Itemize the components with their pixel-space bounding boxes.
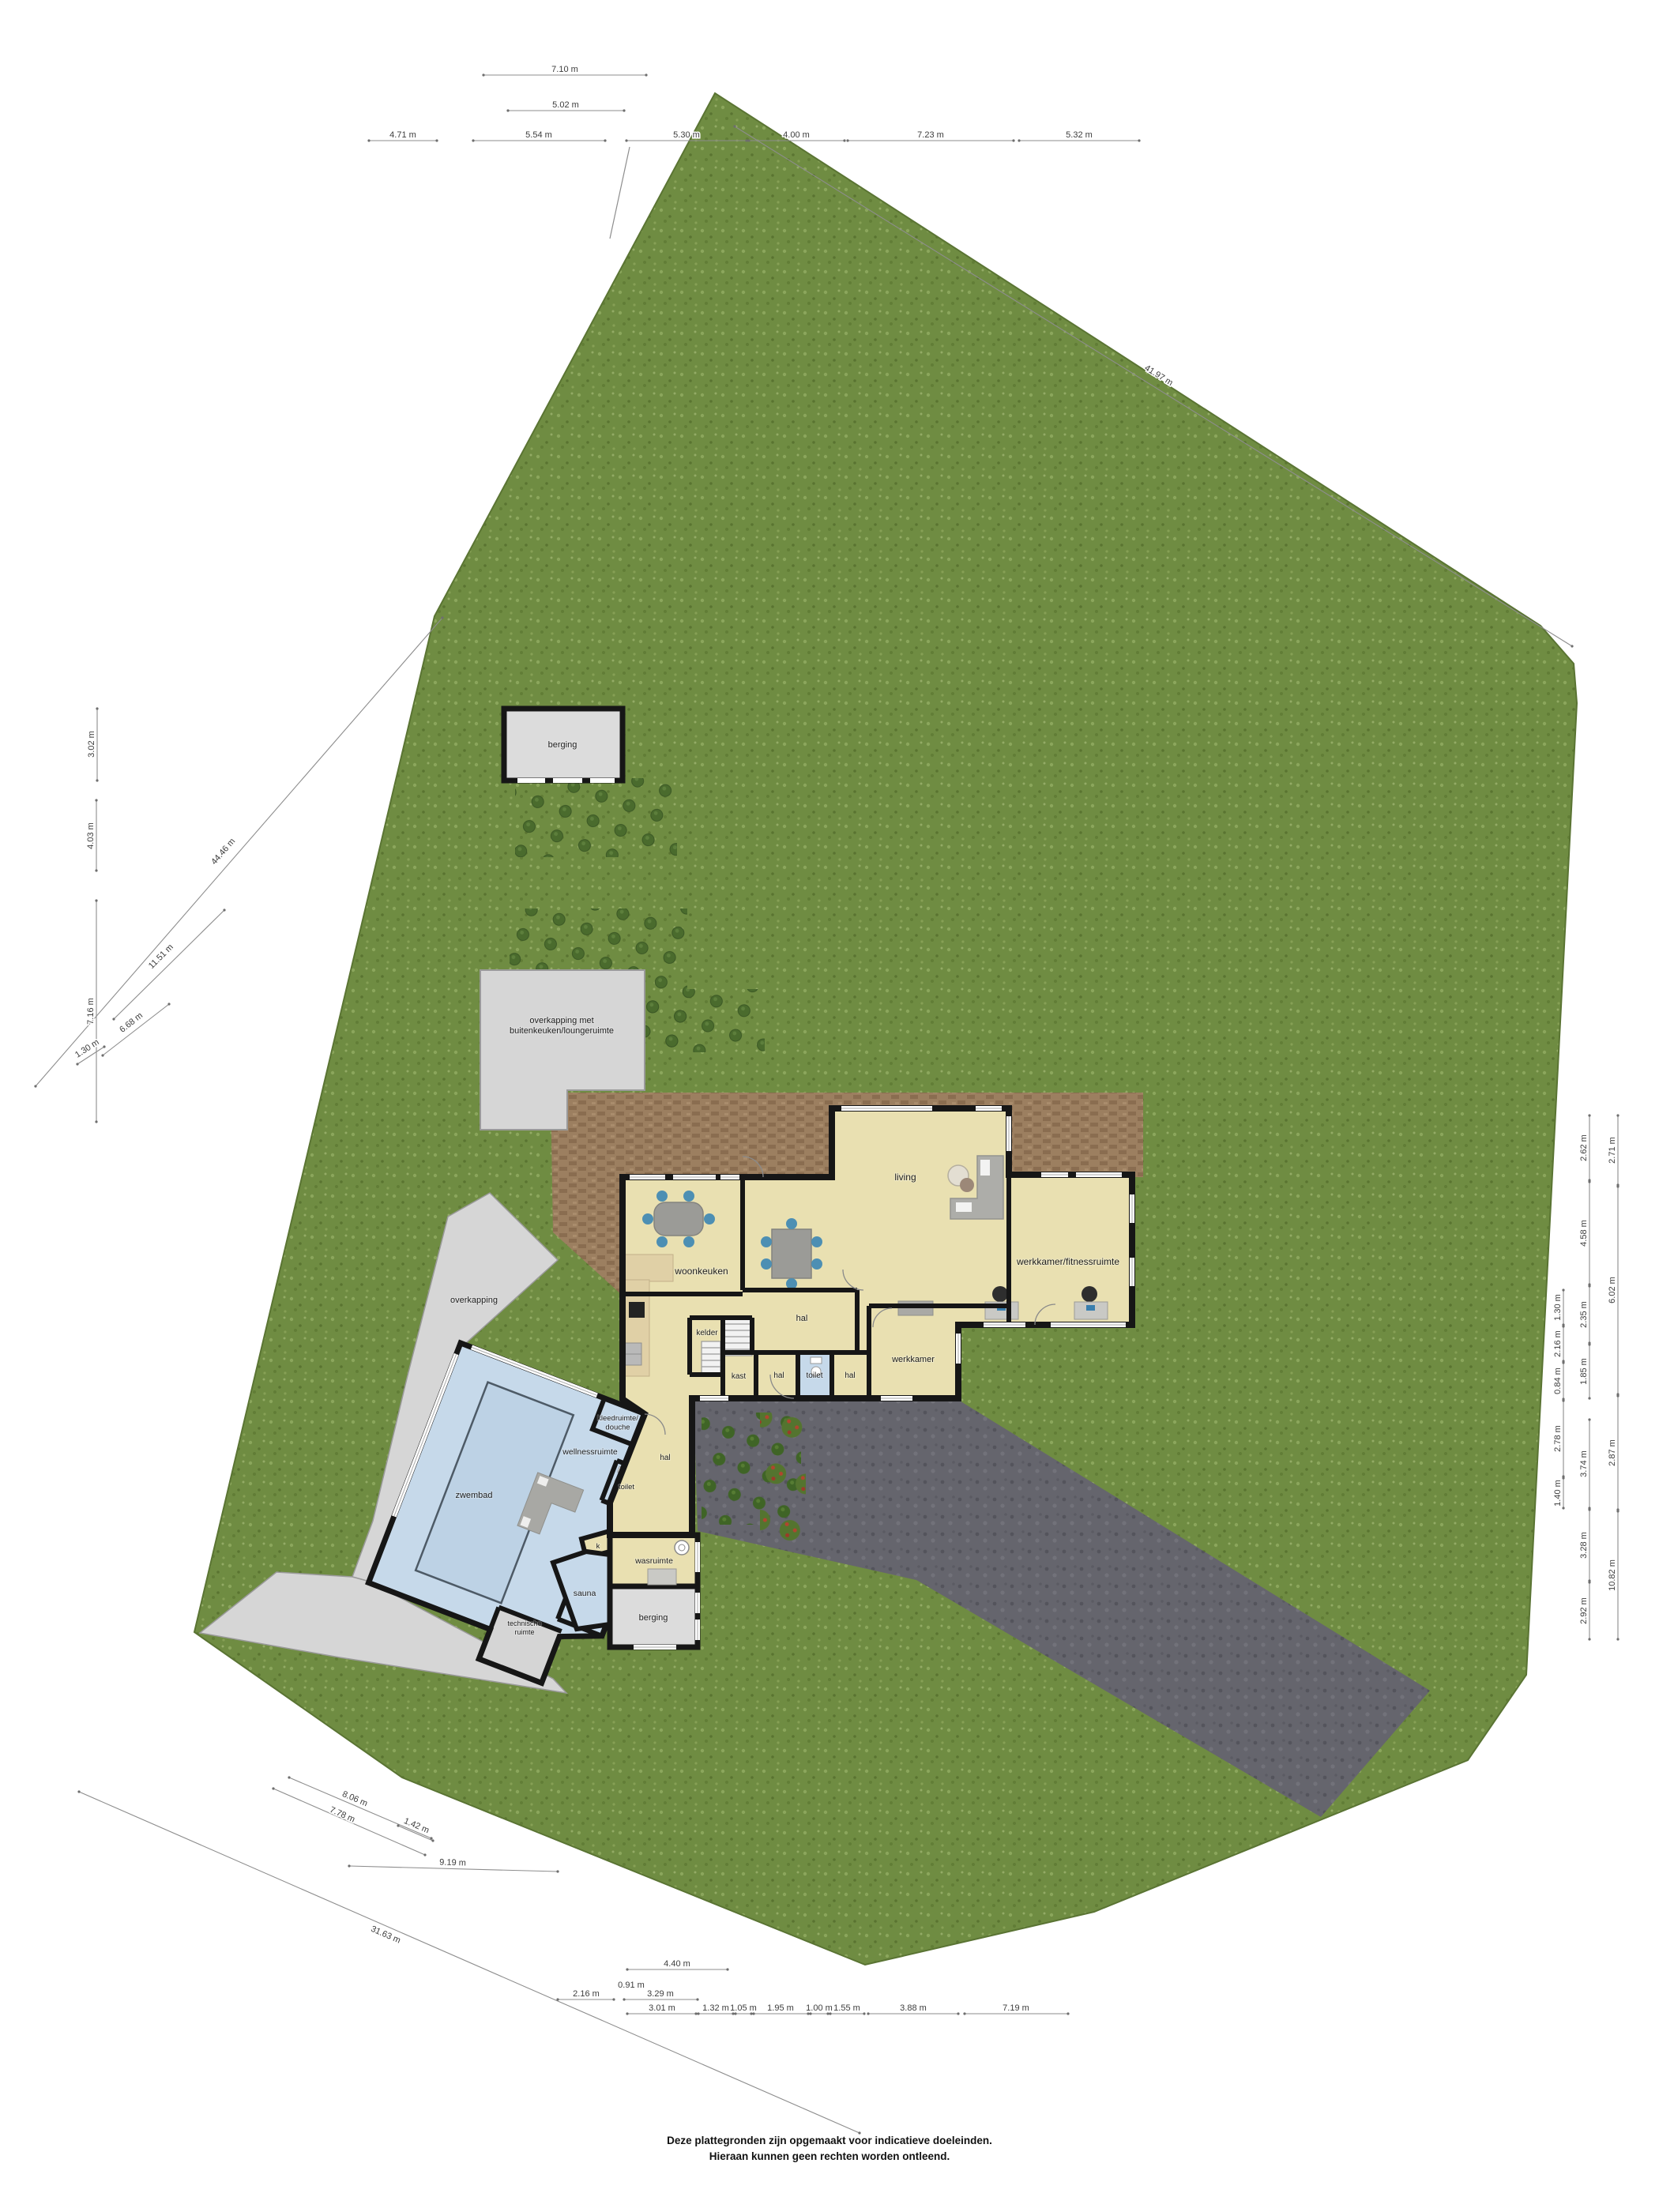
dimension-label-43: 3.28 m (1579, 1532, 1589, 1559)
dimension-leader (610, 147, 630, 239)
dimension-label-12: 7.16 m (86, 998, 96, 1025)
dimension-label-25: 3.01 m (649, 2003, 675, 2013)
room-hal-1: hal (796, 1314, 808, 1323)
dimension-label-2: 4.71 m (389, 130, 416, 140)
dimension-label-45: 2.71 m (1608, 1137, 1617, 1164)
room-hal-2: hal (773, 1371, 784, 1380)
dimension-label-37: 1.40 m (1553, 1480, 1563, 1507)
room-hal-3: hal (845, 1371, 855, 1380)
room-sauna: sauna (574, 1589, 596, 1598)
dimension-label-38: 2.62 m (1579, 1134, 1589, 1161)
dimension-label-23: 2.16 m (573, 1989, 600, 1999)
dimension-label-41: 1.85 m (1579, 1358, 1589, 1385)
dimension-label-6: 7.23 m (917, 130, 944, 140)
dimension-label-34: 2.16 m (1553, 1330, 1563, 1357)
dimension-label-24: 3.29 m (647, 1989, 674, 1999)
room-living: living (894, 1172, 916, 1183)
floorplan-page: 7.10 m5.02 m4.71 m5.54 m5.30 m4.00 m7.23… (0, 0, 1659, 2212)
dimension-label-32: 7.19 m (1003, 2003, 1029, 2013)
dimension-label-5: 4.00 m (783, 130, 810, 140)
room-wellnessruimte: wellnessruimte (562, 1447, 618, 1457)
room-kelder: kelder (696, 1329, 718, 1337)
dimension-label-29: 1.00 m (806, 2003, 833, 2013)
dimension-label-18: 1.42 m (402, 1816, 431, 1835)
dimension-label-14: 6.68 m (118, 1011, 145, 1035)
room-kast: kast (732, 1372, 747, 1381)
dimension-label-36: 2.78 m (1553, 1425, 1563, 1452)
disclaimer-line-1: Deze plattegronden zijn opgemaakt voor i… (0, 2133, 1659, 2149)
dimension-label-44: 2.92 m (1579, 1597, 1589, 1624)
site-plan-canvas: 7.10 m5.02 m4.71 m5.54 m5.30 m4.00 m7.23… (0, 0, 1659, 2212)
room-werkkamer: werkkamer (891, 1355, 935, 1364)
dimension-label-7: 5.32 m (1066, 130, 1093, 140)
dimension-label-46: 6.02 m (1608, 1277, 1617, 1303)
room-berging-shed: berging (548, 740, 577, 750)
dimension-label-13: 11.51 m (147, 942, 175, 971)
room-zwembad: zwembad (455, 1491, 492, 1500)
dimension-label-3: 5.54 m (525, 130, 552, 140)
dimension-label-4: 5.30 m (673, 130, 700, 140)
dimension-label-9: 44.46 m (209, 837, 237, 867)
dimension-label-35: 0.84 m (1553, 1367, 1563, 1394)
dimension-label-11: 4.03 m (86, 822, 96, 849)
room-hal-4: hal (660, 1454, 670, 1462)
dimension-label-39: 4.58 m (1579, 1220, 1589, 1247)
room-woonkeuken: woonkeuken (674, 1266, 728, 1277)
dimension-label-10: 3.02 m (87, 731, 96, 758)
disclaimer-text: Deze plattegronden zijn opgemaakt voor i… (0, 2133, 1659, 2164)
room-overkapping: overkapping (450, 1296, 498, 1305)
room-wasruimte: wasruimte (634, 1556, 673, 1566)
dimension-label-26: 1.32 m (702, 2003, 729, 2013)
room-toilet-2: toilet (619, 1483, 634, 1492)
dimension-label-17: 7.78 m (328, 1805, 356, 1825)
dimension-label-1: 5.02 m (552, 100, 579, 110)
dimension-label-21: 4.40 m (664, 1959, 690, 1969)
dimension-label-33: 1.30 m (1553, 1294, 1563, 1321)
dimension-label-47: 2.87 m (1608, 1439, 1617, 1466)
dimension-label-28: 1.95 m (767, 2003, 794, 2013)
dimension-label-27: 1.05 m (730, 2003, 757, 2013)
room-toilet-1: toilet (806, 1371, 822, 1380)
dimension-label-31: 3.88 m (900, 2003, 927, 2013)
room-k: k (596, 1542, 600, 1551)
room-berging-2: berging (639, 1613, 668, 1623)
dimension-label-20: 31.63 m (370, 1924, 402, 1946)
dimension-label-40: 2.35 m (1579, 1301, 1589, 1328)
room-werkkamer-fitnessruimte: werkkamer/fitnessruimte (1016, 1256, 1119, 1267)
dimension-label-30: 1.55 m (833, 2003, 860, 2013)
disclaimer-line-2: Hieraan kunnen geen rechten worden ontle… (0, 2149, 1659, 2165)
dimension-label-19: 9.19 m (439, 1858, 466, 1868)
dimension-label-22: 0.91 m (618, 1981, 645, 1990)
dimension-label-48: 10.82 m (1608, 1559, 1617, 1591)
dimension-label-42: 3.74 m (1579, 1450, 1589, 1477)
dimension-label-0: 7.10 m (551, 65, 578, 74)
